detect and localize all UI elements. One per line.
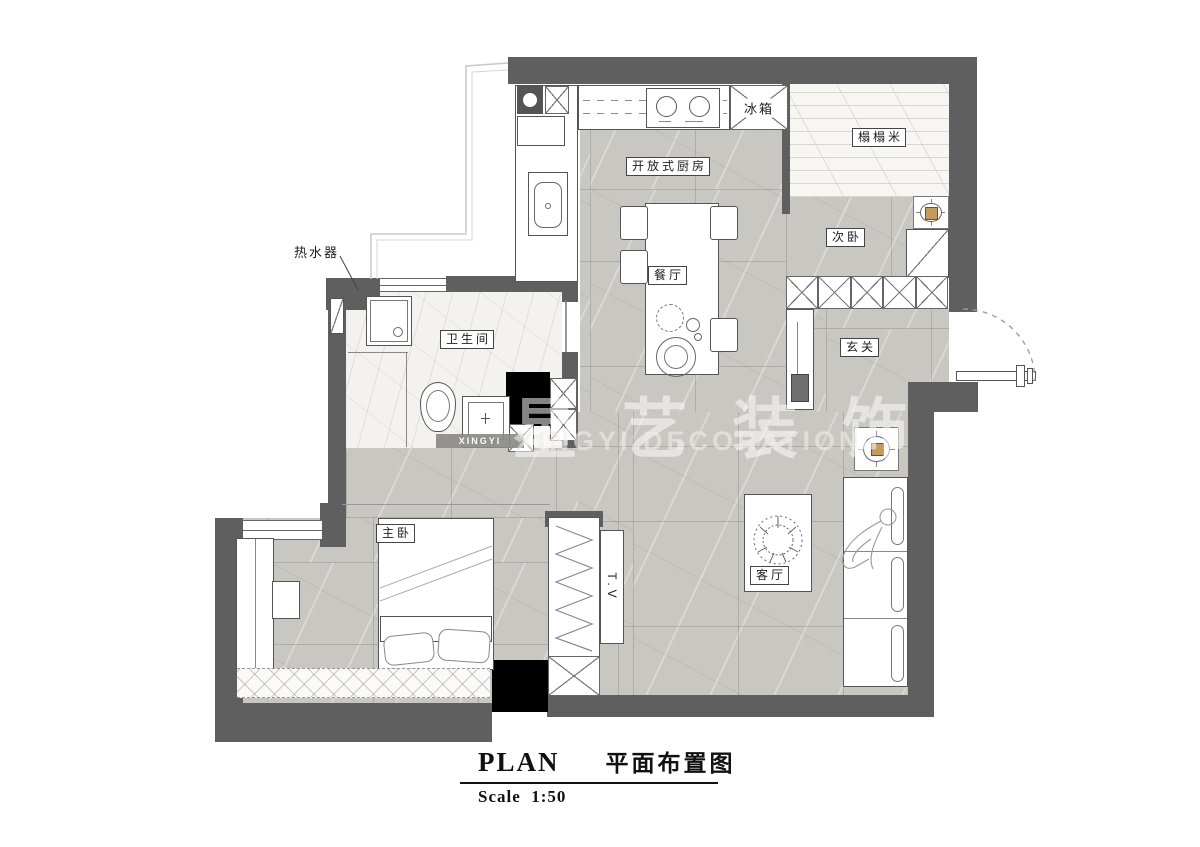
label-water-heater: 热水器	[294, 242, 339, 261]
watermark-en: XINGYI DECORATION	[516, 426, 863, 457]
watermark-ribbon: XINGYI	[436, 434, 524, 448]
entry-door-arc	[963, 309, 1035, 381]
title-plan-en: PLAN	[478, 747, 560, 778]
label-living-room: 客厅	[750, 566, 789, 585]
water-heater-leader	[340, 256, 358, 290]
structure-outline-inner	[377, 70, 508, 279]
structure-outline-outer	[371, 63, 508, 279]
watermark-zh: 星艺装饰	[512, 376, 952, 472]
label-master-bedroom: 主卧	[376, 524, 415, 543]
title-rule	[460, 782, 718, 784]
label-second-bedroom: 次卧	[826, 228, 865, 247]
tv-cabinet-zigzag	[556, 526, 592, 651]
label-open-kitchen: 开放式厨房	[626, 157, 710, 176]
label-tatami: 榻榻米	[852, 128, 906, 147]
label-entry: 玄关	[840, 338, 879, 357]
label-dining: 餐厅	[648, 266, 687, 285]
title-block: PLAN 平面布置图 Scale 1:50	[460, 744, 760, 807]
title-scale: Scale 1:50	[478, 787, 760, 807]
title-plan-zh: 平面布置图	[606, 744, 736, 778]
bed-blanket-line-1	[380, 546, 492, 588]
bed-blanket-line-2	[380, 559, 492, 601]
label-bathroom: 卫生间	[440, 330, 494, 349]
plant-icon	[754, 516, 802, 564]
person-figure	[843, 509, 896, 569]
floor-plan-canvas: 冰箱	[0, 0, 1200, 847]
